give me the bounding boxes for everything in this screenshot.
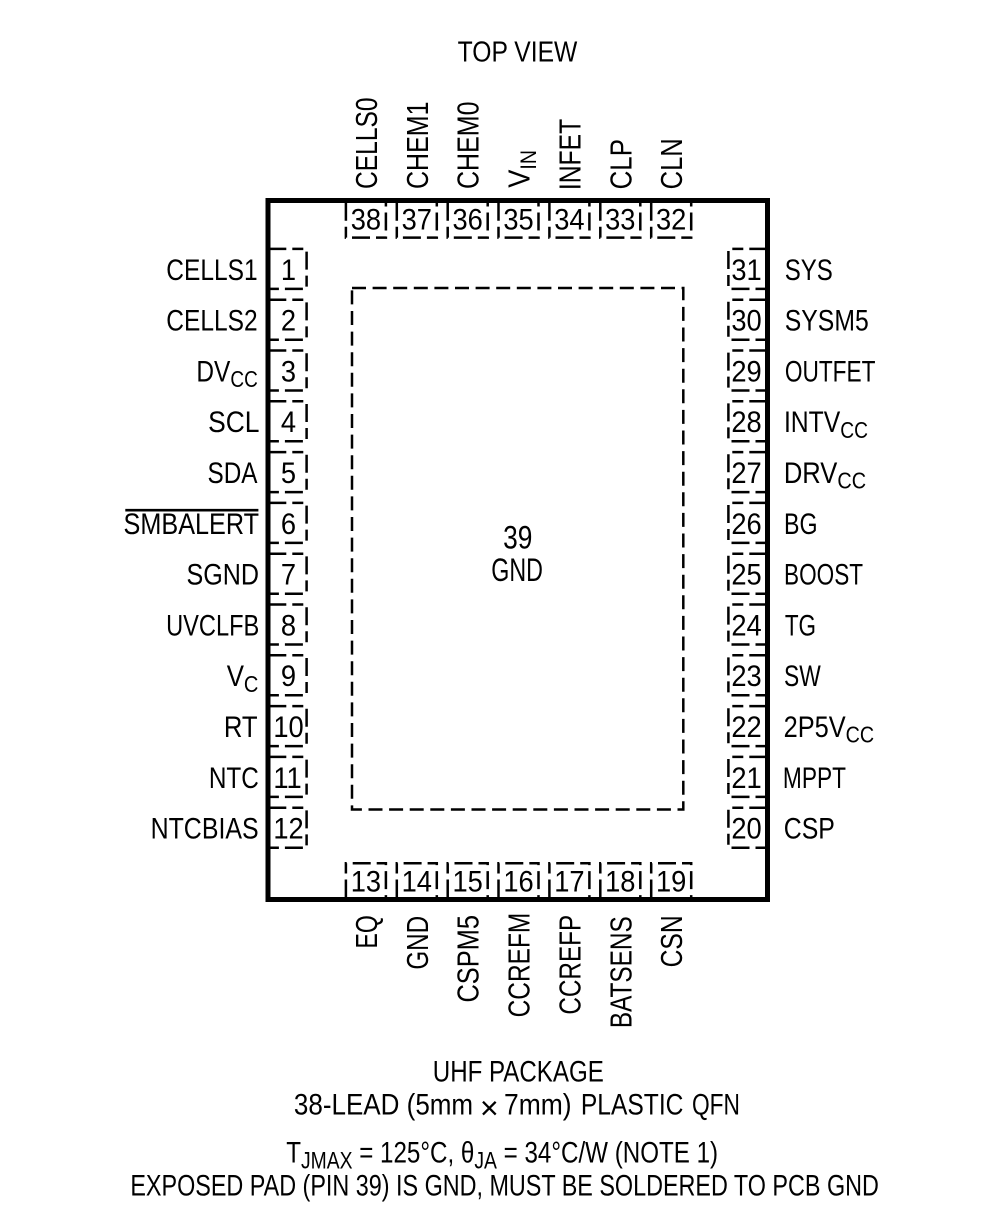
svg-text:12: 12 xyxy=(273,812,303,845)
svg-text:CCREFP: CCREFP xyxy=(553,915,588,1015)
svg-text:INTVCC: INTVCC xyxy=(784,405,868,443)
svg-text:33: 33 xyxy=(605,203,635,236)
svg-text:DRVCC: DRVCC xyxy=(784,456,866,494)
svg-text:29: 29 xyxy=(731,355,761,388)
svg-text:BOOST: BOOST xyxy=(784,557,863,591)
svg-text:UHF PACKAGE: UHF PACKAGE xyxy=(433,1054,604,1088)
svg-text:10: 10 xyxy=(273,711,303,744)
svg-text:CSP: CSP xyxy=(784,811,835,845)
svg-text:OUTFET: OUTFET xyxy=(785,354,876,388)
svg-text:TG: TG xyxy=(785,608,816,642)
svg-text:11: 11 xyxy=(273,762,301,795)
svg-text:BG: BG xyxy=(784,507,817,541)
svg-text:PLASTIC: PLASTIC xyxy=(581,1087,684,1121)
svg-text:19: 19 xyxy=(656,865,686,898)
svg-text:2: 2 xyxy=(281,304,296,337)
svg-text:32: 32 xyxy=(656,203,686,236)
svg-text:EQ: EQ xyxy=(349,915,384,948)
svg-text:CSN: CSN xyxy=(655,915,689,967)
svg-text:38-LEAD (5mm: 38-LEAD (5mm xyxy=(294,1088,473,1121)
svg-text:15: 15 xyxy=(452,865,482,898)
svg-text:CLN: CLN xyxy=(655,138,690,189)
svg-text:20: 20 xyxy=(731,812,761,845)
svg-text:13: 13 xyxy=(351,865,381,898)
svg-text:23: 23 xyxy=(731,660,761,693)
svg-text:5: 5 xyxy=(281,457,296,490)
svg-text:17: 17 xyxy=(554,865,584,898)
svg-text:35: 35 xyxy=(503,203,533,236)
svg-text:6: 6 xyxy=(281,508,296,541)
svg-text:34: 34 xyxy=(554,203,584,236)
svg-text:SDA: SDA xyxy=(208,456,259,490)
svg-text:28: 28 xyxy=(731,406,761,439)
svg-text:30: 30 xyxy=(731,304,761,337)
svg-text:RT: RT xyxy=(224,710,258,743)
svg-text:CELLS2: CELLS2 xyxy=(166,303,257,337)
svg-text:16: 16 xyxy=(503,865,533,898)
svg-text:9: 9 xyxy=(281,660,296,693)
svg-text:SW: SW xyxy=(784,659,821,693)
svg-text:26: 26 xyxy=(731,508,761,541)
svg-text:1: 1 xyxy=(281,254,296,287)
svg-text:UVCLFB: UVCLFB xyxy=(166,609,259,642)
svg-text:GND: GND xyxy=(491,552,543,587)
svg-text:25: 25 xyxy=(731,558,761,591)
svg-text:SGND: SGND xyxy=(186,557,259,591)
svg-text:7mm): 7mm) xyxy=(504,1087,572,1121)
svg-text:TOP VIEW: TOP VIEW xyxy=(458,35,578,67)
svg-text:27: 27 xyxy=(731,457,761,490)
svg-text:39: 39 xyxy=(503,520,532,556)
svg-text:×: × xyxy=(480,1090,499,1126)
svg-text:3: 3 xyxy=(281,355,296,388)
svg-text:CELLS0: CELLS0 xyxy=(349,97,383,189)
svg-text:38: 38 xyxy=(351,203,381,236)
svg-text:CHEM1: CHEM1 xyxy=(400,102,434,190)
svg-text:SYSM5: SYSM5 xyxy=(785,303,869,337)
svg-text:CHEM0: CHEM0 xyxy=(451,102,485,190)
svg-text:NTCBIAS: NTCBIAS xyxy=(151,811,259,845)
svg-text:31: 31 xyxy=(731,254,761,287)
svg-text:CELLS1: CELLS1 xyxy=(166,252,257,286)
svg-text:22: 22 xyxy=(731,711,761,744)
svg-text:24: 24 xyxy=(731,609,761,642)
svg-text:36: 36 xyxy=(452,203,482,236)
svg-text:EXPOSED PAD (PIN 39) IS GND, M: EXPOSED PAD (PIN 39) IS GND, MUST BE SOL… xyxy=(130,1169,879,1202)
svg-text:CLP: CLP xyxy=(604,139,639,189)
svg-text:CCREFM: CCREFM xyxy=(502,913,536,1018)
svg-text:GND: GND xyxy=(400,916,435,970)
svg-text:21: 21 xyxy=(731,762,761,795)
svg-text:8: 8 xyxy=(281,609,296,642)
svg-text:DVCC: DVCC xyxy=(196,354,257,393)
svg-text:2P5VCC: 2P5VCC xyxy=(784,710,875,748)
svg-text:NTC: NTC xyxy=(209,760,259,794)
svg-text:VIN: VIN xyxy=(503,150,541,188)
svg-text:4: 4 xyxy=(281,406,296,439)
svg-text:SMBALERT: SMBALERT xyxy=(124,507,260,541)
svg-text:CSPM5: CSPM5 xyxy=(451,915,486,1003)
svg-text:14: 14 xyxy=(402,865,432,898)
svg-text:INFET: INFET xyxy=(553,119,587,190)
svg-text:SYS: SYS xyxy=(785,252,833,286)
svg-text:18: 18 xyxy=(605,865,635,898)
svg-text:QFN: QFN xyxy=(692,1087,740,1121)
svg-text:MPPT: MPPT xyxy=(783,761,846,795)
svg-text:37: 37 xyxy=(402,203,432,236)
svg-text:7: 7 xyxy=(281,558,296,591)
svg-text:SCL: SCL xyxy=(208,405,259,439)
svg-text:BATSENS: BATSENS xyxy=(604,916,638,1028)
svg-text:VC: VC xyxy=(227,659,259,697)
